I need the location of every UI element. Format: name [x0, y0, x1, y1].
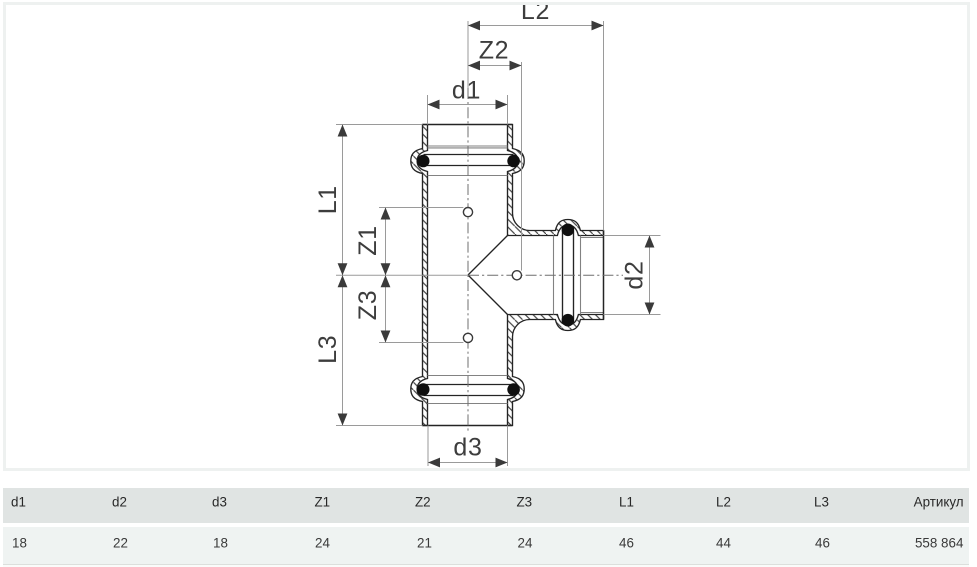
- svg-text:21: 21: [417, 536, 432, 551]
- svg-text:24: 24: [518, 536, 533, 551]
- svg-text:44: 44: [716, 536, 731, 551]
- svg-text:d1: d1: [11, 495, 26, 510]
- svg-text:d3: d3: [212, 495, 227, 510]
- svg-text:46: 46: [619, 536, 634, 551]
- svg-text:Z3: Z3: [517, 495, 533, 510]
- svg-text:Z2: Z2: [415, 495, 431, 510]
- svg-text:18: 18: [213, 536, 228, 551]
- svg-text:22: 22: [113, 536, 128, 551]
- svg-text:Артикул: Артикул: [914, 495, 964, 510]
- svg-text:d2: d2: [112, 495, 127, 510]
- svg-text:L2: L2: [716, 495, 731, 510]
- svg-text:L3: L3: [814, 495, 829, 510]
- svg-text:Z1: Z1: [315, 495, 331, 510]
- svg-text:24: 24: [315, 536, 330, 551]
- svg-text:L1: L1: [619, 495, 634, 510]
- svg-text:46: 46: [815, 536, 830, 551]
- svg-text:18: 18: [12, 536, 27, 551]
- svg-text:558 864: 558 864: [915, 536, 964, 551]
